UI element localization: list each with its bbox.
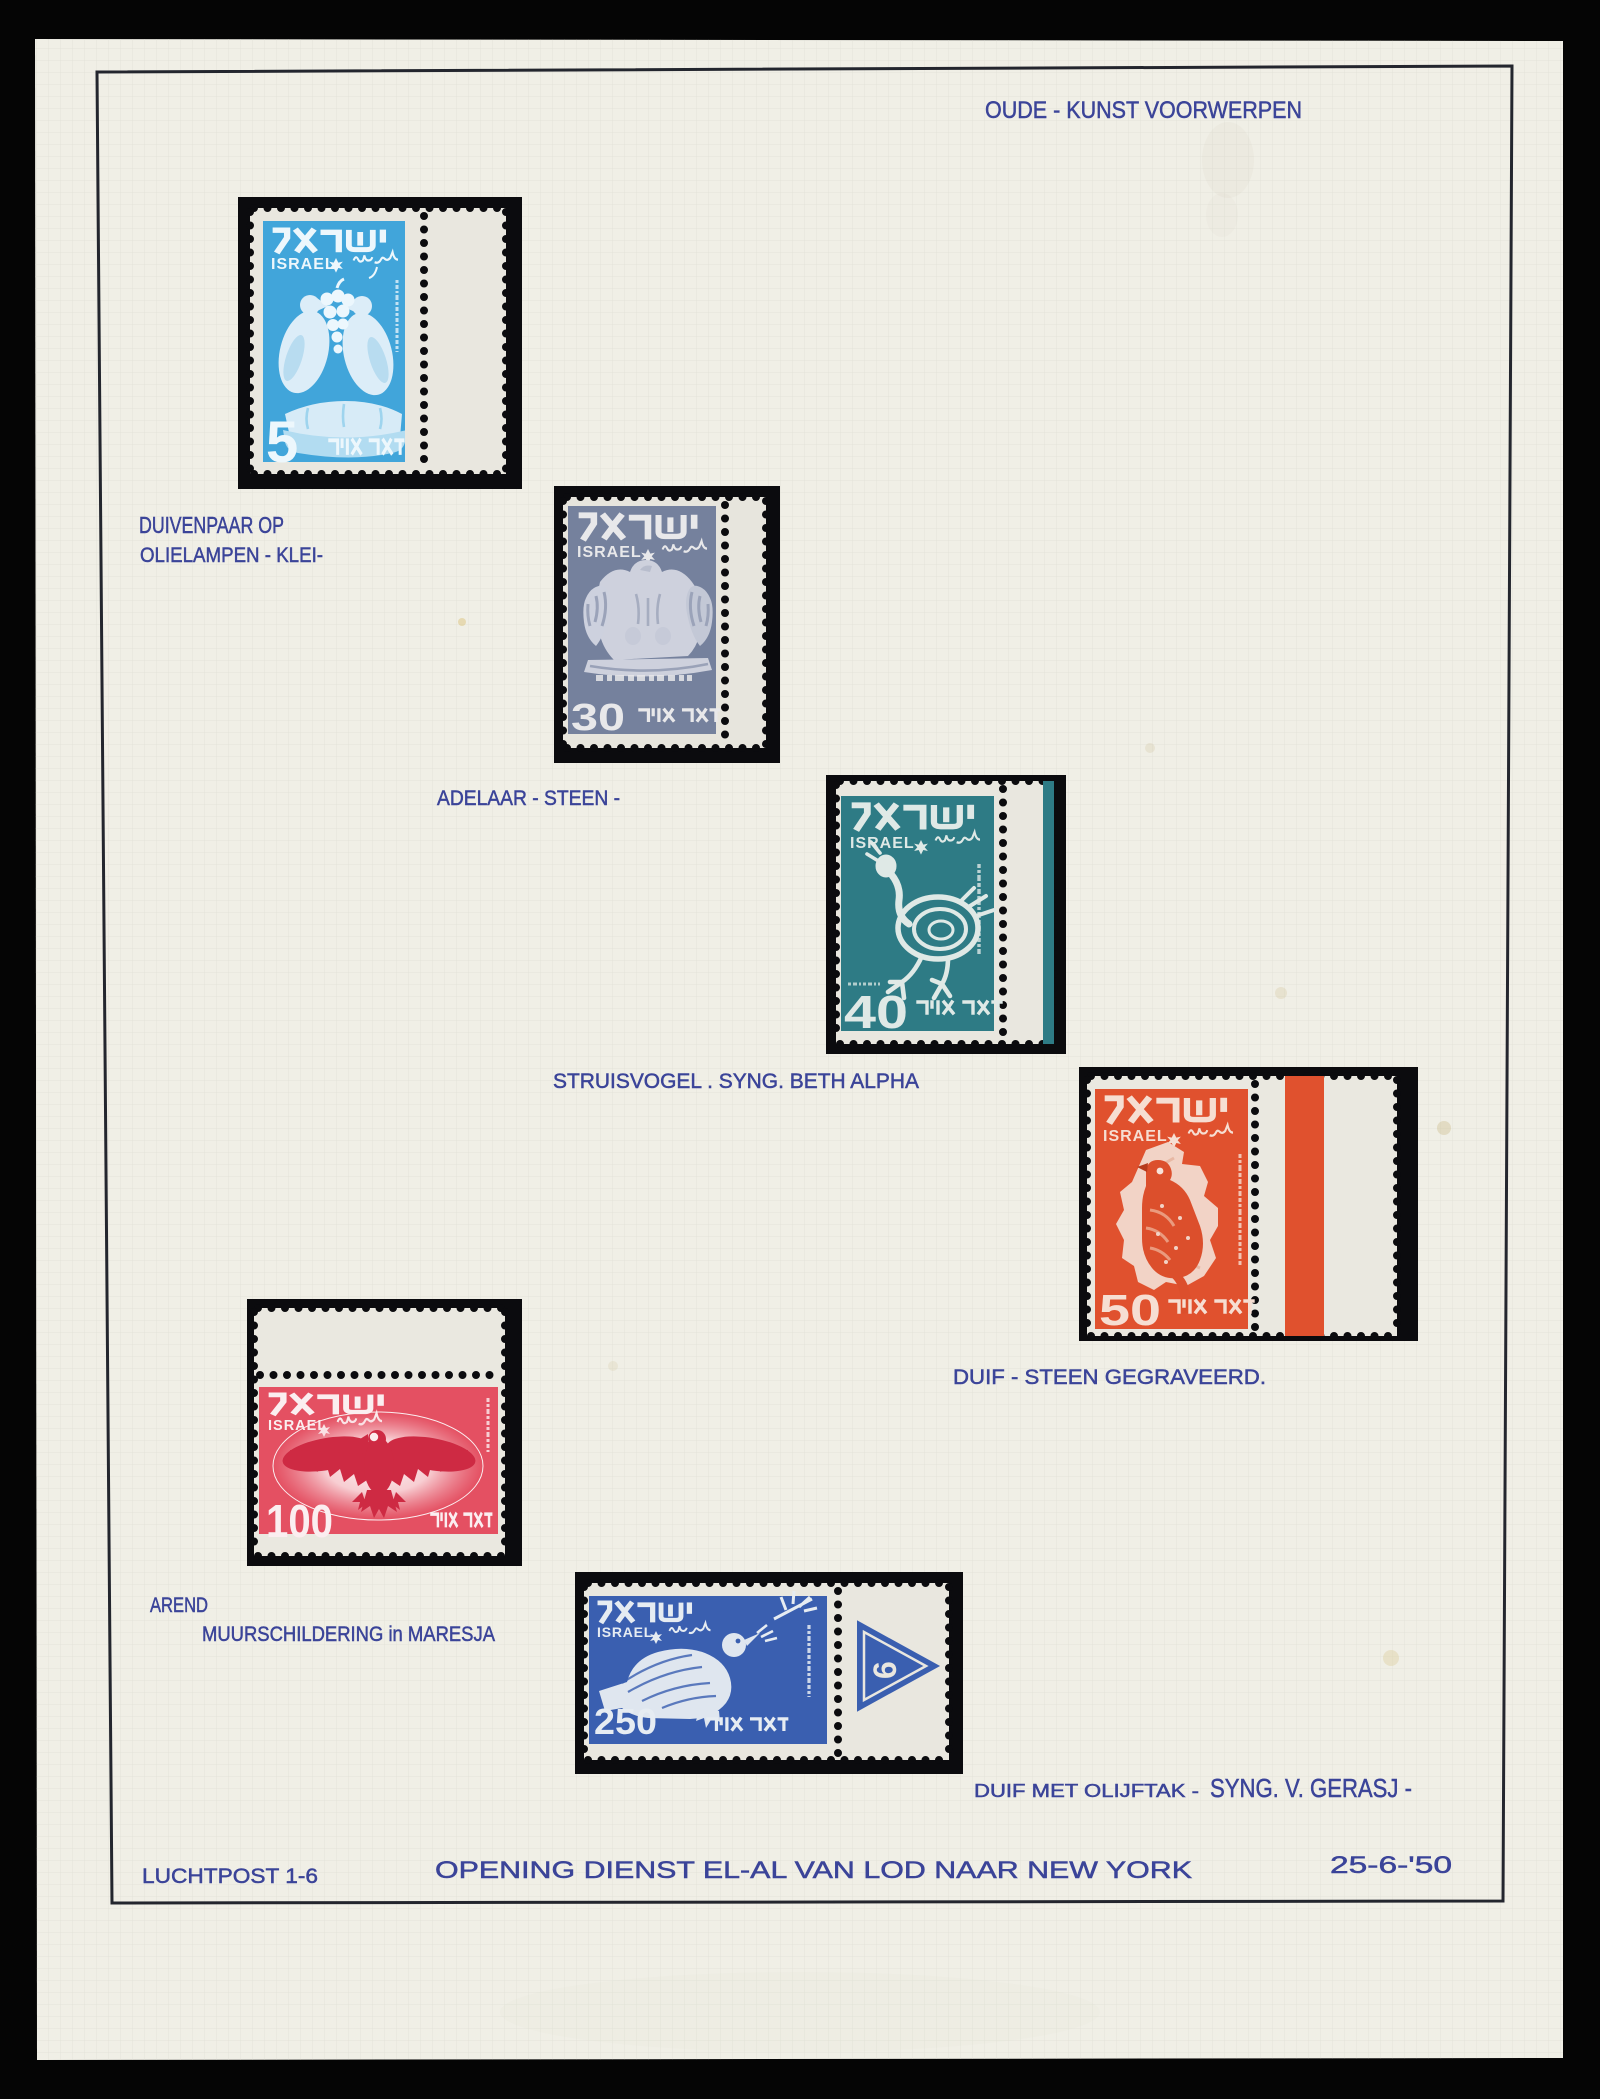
- svg-text:5: 5: [266, 410, 298, 475]
- svg-text:ADELAAR - STEEN -: ADELAAR - STEEN -: [437, 787, 620, 810]
- svg-text:OUDE - KUNST VOORWERPEN: OUDE - KUNST VOORWERPEN: [985, 97, 1302, 124]
- svg-text:ISRAEL: ISRAEL: [577, 544, 642, 561]
- svg-text:40: 40: [844, 986, 908, 1038]
- svg-text:DUIF MET OLIJFTAK -: DUIF MET OLIJFTAK -: [974, 1781, 1199, 1801]
- svg-text:AREND: AREND: [150, 1594, 208, 1617]
- svg-text:STRUISVOGEL . SYNG. BETH ALPHA: STRUISVOGEL . SYNG. BETH ALPHA: [553, 1070, 919, 1093]
- svg-text:DUIF - STEEN GEGRAVEERD.: DUIF - STEEN GEGRAVEERD.: [953, 1366, 1266, 1389]
- svg-text:50: 50: [1099, 1286, 1161, 1335]
- svg-text:250: 250: [594, 1701, 657, 1742]
- svg-text:30: 30: [571, 697, 625, 739]
- svg-text:MUURSCHILDERING in MARESJA: MUURSCHILDERING in MARESJA: [202, 1623, 495, 1646]
- svg-text:DUIVENPAAR OP: DUIVENPAAR OP: [139, 512, 284, 538]
- svg-text:SYNG. V. GERASJ -: SYNG. V. GERASJ -: [1210, 1773, 1412, 1803]
- svg-text:ISRAEL: ISRAEL: [271, 256, 336, 273]
- svg-text:ISRAEL: ISRAEL: [850, 835, 915, 852]
- svg-text:ISRAEL: ISRAEL: [1103, 1128, 1168, 1145]
- svg-text:LUCHTPOST 1-6: LUCHTPOST 1-6: [142, 1865, 318, 1888]
- svg-text:100: 100: [266, 1495, 333, 1547]
- svg-text:OLIELAMPEN - KLEI-: OLIELAMPEN - KLEI-: [140, 544, 323, 567]
- svg-text:OPENING DIENST EL-AL VAN L: OPENING DIENST EL-AL VAN LOD NAAR NEW YO…: [435, 1857, 1192, 1884]
- svg-text:25-6-'50: 25-6-'50: [1330, 1852, 1452, 1879]
- svg-text:ISRAEL: ISRAEL: [597, 1624, 653, 1640]
- svg-text:6: 6: [867, 1661, 903, 1679]
